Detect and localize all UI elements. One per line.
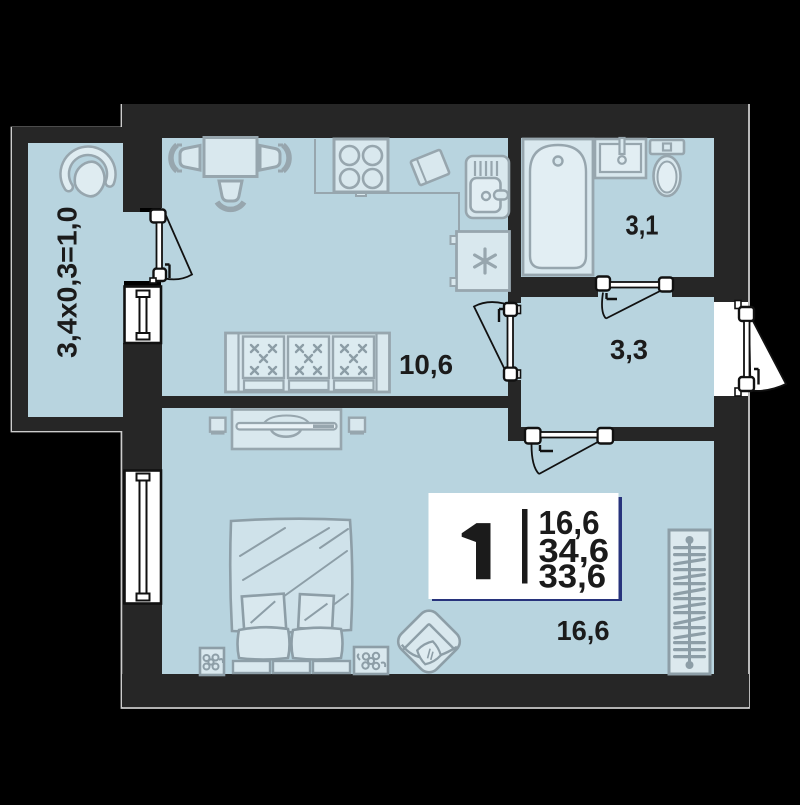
svg-text:33,6: 33,6 bbox=[539, 559, 607, 596]
svg-text:16,6: 16,6 bbox=[557, 615, 610, 646]
svg-text:3,1: 3,1 bbox=[626, 210, 659, 241]
svg-text:3,4x0,3=1,0: 3,4x0,3=1,0 bbox=[52, 207, 83, 359]
svg-text:3,3: 3,3 bbox=[610, 334, 648, 365]
svg-text:10,6: 10,6 bbox=[399, 349, 453, 380]
